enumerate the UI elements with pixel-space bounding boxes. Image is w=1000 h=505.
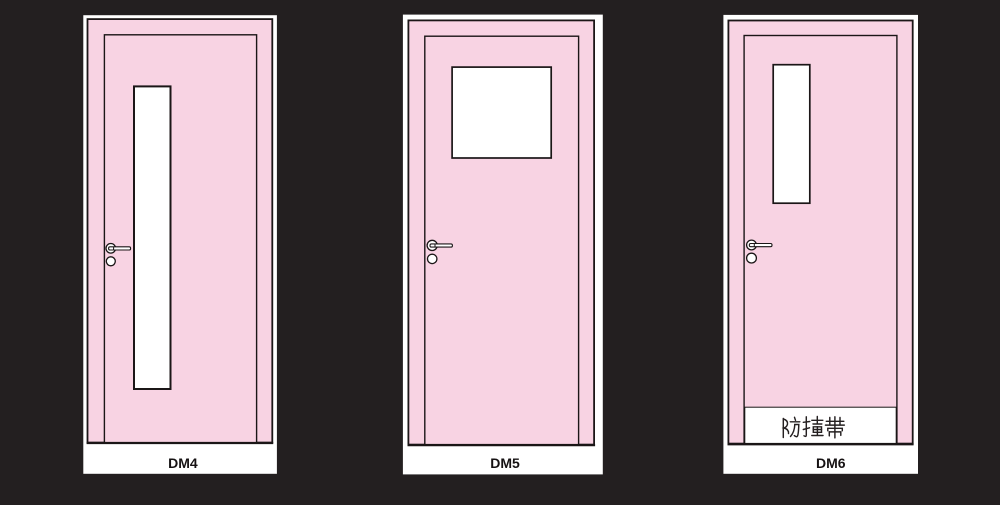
svg-text:DM5: DM5: [490, 455, 520, 471]
svg-text:DM6: DM6: [816, 455, 846, 471]
svg-text:DM4: DM4: [168, 455, 198, 471]
